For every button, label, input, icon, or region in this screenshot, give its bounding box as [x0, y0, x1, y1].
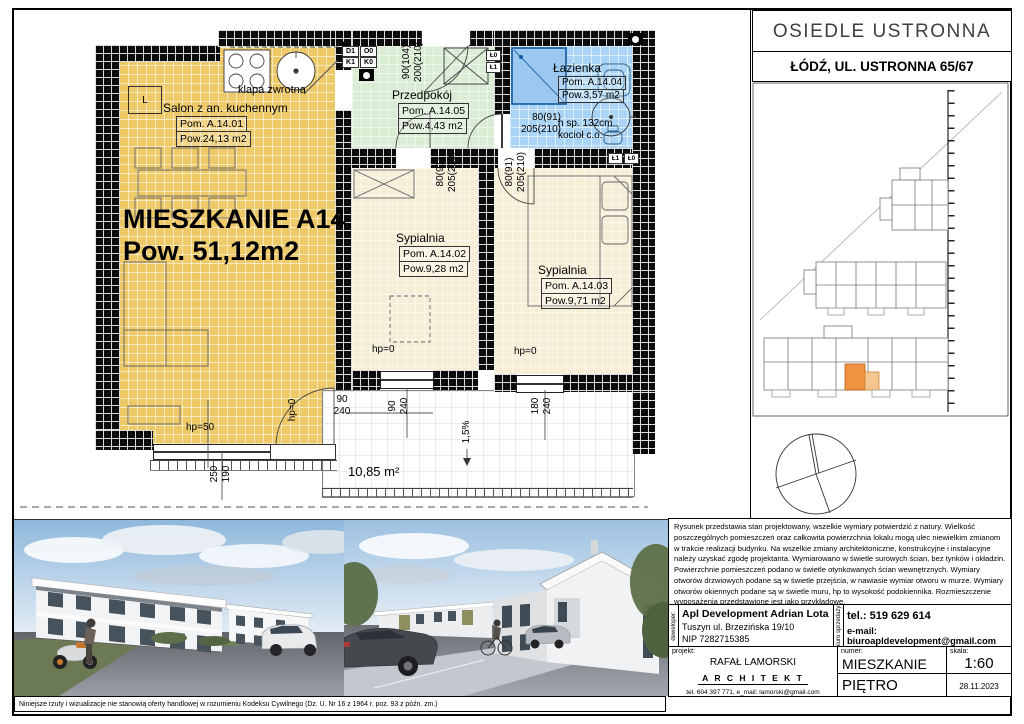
legal-strip: Niniejsze rzuty i wizualizacje nie stano…	[14, 696, 666, 712]
room-id-bedroom-1: Pom. A.14.02	[399, 246, 470, 262]
room-label-hall: Przedpokój	[392, 88, 452, 102]
site-plan	[752, 82, 1010, 418]
kitchen-outlet-codes: D1O0	[342, 46, 377, 57]
room-area-salon: Pow.24,13 m2	[176, 131, 251, 147]
dim-hp0-bedroom-2: hp=0	[514, 346, 537, 358]
developer-name: Apl Development Adrian Lota	[682, 608, 829, 620]
drawing-date: 28.11.2023	[947, 682, 1011, 691]
north-indicator	[770, 428, 862, 520]
dim-hp0-salon: hp=0	[287, 399, 299, 422]
apartment-area: Pow. 51,12m2	[123, 236, 299, 267]
architect-contact: tel. 604 397 771, e_mail: lamorski@gmail…	[669, 689, 837, 696]
light-symbol: L	[128, 86, 162, 114]
dim-entrance: 90(104)200(210)	[401, 42, 425, 82]
scale-cell: skala: 1:60	[946, 646, 1012, 674]
developer-cell: deweloper: Apl Development Adrian Lota T…	[668, 604, 834, 647]
scale-value: 1:60	[947, 655, 1011, 672]
highlighted-unit	[845, 364, 865, 390]
project-address: ŁÓDŹ, UL. USTRONNA 65/67	[790, 59, 973, 74]
vent-icon	[359, 69, 374, 81]
room-label-salon: Salon z an. kuchennym	[163, 101, 288, 115]
disclaimer-text: Rysunek przedstawia stan projektowany, w…	[674, 522, 1006, 608]
developer-label-strip: deweloper:	[669, 605, 679, 646]
room-id-bedroom-2: Pom. A.14.03	[541, 278, 612, 294]
exterior-render-2	[344, 519, 668, 696]
room-area-bedroom-1: Pow.9,28 m2	[399, 261, 468, 277]
room-id-hall: Pom. A.14.05	[398, 103, 469, 119]
project-address-box: ŁÓDŹ, UL. USTRONNA 65/67	[752, 51, 1012, 82]
project-title: OSIEDLE USTRONNA	[773, 21, 991, 43]
office-info: tel.: 519 629 614 e-mail: biuroapldevelo…	[847, 610, 1011, 646]
numer-label: numer:	[841, 648, 863, 655]
vent-icon	[628, 33, 643, 45]
office-phone: tel.: 519 629 614	[847, 610, 1011, 622]
projekt-label: projekt:	[672, 648, 695, 655]
room-id-salon: Pom. A.14.01	[176, 116, 247, 132]
kitchen-flap-label: klapa zwrotna	[238, 84, 306, 96]
architect-title: A R C H I T E K T	[698, 673, 808, 685]
floor-plan: Salon z an. kuchennym Pom. A.14.01 Pow.2…	[0, 0, 750, 518]
developer-info: Apl Development Adrian Lota Tuszyn ul. B…	[682, 608, 829, 644]
legal-text: Niniejsze rzuty i wizualizacje nie stano…	[15, 701, 438, 708]
dim-salon-door: 90240	[327, 394, 357, 418]
apartment-title: MIESZKANIE A14	[123, 204, 346, 235]
developer-label: deweloper:	[671, 611, 677, 640]
skala-label: skala:	[950, 648, 968, 655]
terrace-slope-label: 1,5%	[461, 421, 473, 444]
disclaimer-box: Rysunek przedstawia stan projektowany, w…	[668, 518, 1012, 605]
panel-divider	[750, 10, 751, 518]
architect-cell: projekt: RAFAŁ LAMORSKI A R C H I T E K …	[668, 646, 838, 697]
vent-glyph	[363, 72, 370, 79]
room-label-bath: Łazienka	[553, 61, 601, 75]
render-2-art	[344, 520, 668, 696]
dim-window-bedroom-1: 90240	[387, 398, 411, 415]
sales-office-cell: biuro sprzedaży: tel.: 519 629 614 e-mai…	[833, 604, 1012, 647]
bath-outlet-codes: Ł0Ł1	[486, 50, 501, 73]
office-label-strip: biuro sprzedaży:	[834, 605, 844, 646]
terrace-area-label: 10,85 m²	[348, 464, 399, 479]
dim-door-bath: 80(91)205(210)	[504, 112, 561, 136]
room-area-bedroom-2: Pow.9,71 m2	[541, 293, 610, 309]
architect-name: RAFAŁ LAMORSKI	[669, 657, 837, 668]
room-id-bath: Pom. A.14.04	[558, 76, 626, 90]
kitchen-outlet-codes: K1K0	[342, 57, 377, 68]
boiler-note: h sp. 132cmkocioł c.o.	[558, 118, 612, 142]
drawing-number-cell: numer: MIESZKANIE A14	[837, 646, 947, 674]
dim-hp50: hp=50	[186, 422, 214, 434]
dim-hp0-bedroom-1: hp=0	[372, 344, 395, 356]
office-label: biuro sprzedaży:	[836, 604, 842, 648]
dim-door-bedroom-2: 80(91)205(210)	[504, 152, 528, 192]
drawing-sheet: Salon z an. kuchennym Pom. A.14.01 Pow.2…	[0, 0, 1024, 724]
room-area-hall: Pow.4,43 m2	[398, 118, 467, 134]
floor-name: PIĘTRO	[842, 677, 946, 694]
room-area-bath: Pow.3,57 m2	[558, 89, 624, 103]
room-label-bedroom-2: Sypialnia	[538, 263, 587, 277]
vent-glyph	[632, 36, 639, 43]
dim-salon-window: 250190	[209, 466, 233, 483]
office-email: e-mail: biuroapldevelopment@gmail.com	[847, 626, 1011, 646]
dim-window-bedroom-2: 180240	[530, 398, 554, 415]
bath-outlet-codes: Ł1Ł0	[608, 153, 639, 164]
developer-nip: NIP 7282715385	[682, 634, 829, 644]
date-cell: 28.11.2023	[946, 673, 1012, 697]
dim-door-bedroom-1: 80(91)205(210)	[435, 152, 459, 192]
room-label-bedroom-1: Sypialnia	[396, 231, 445, 245]
developer-address: Tuszyn ul. Brzezińska 19/10	[682, 622, 829, 632]
exterior-render-1	[14, 519, 344, 696]
project-title-box: OSIEDLE USTRONNA	[752, 10, 1012, 54]
floor-cell: PIĘTRO	[837, 673, 947, 697]
render-1-art	[14, 520, 344, 696]
